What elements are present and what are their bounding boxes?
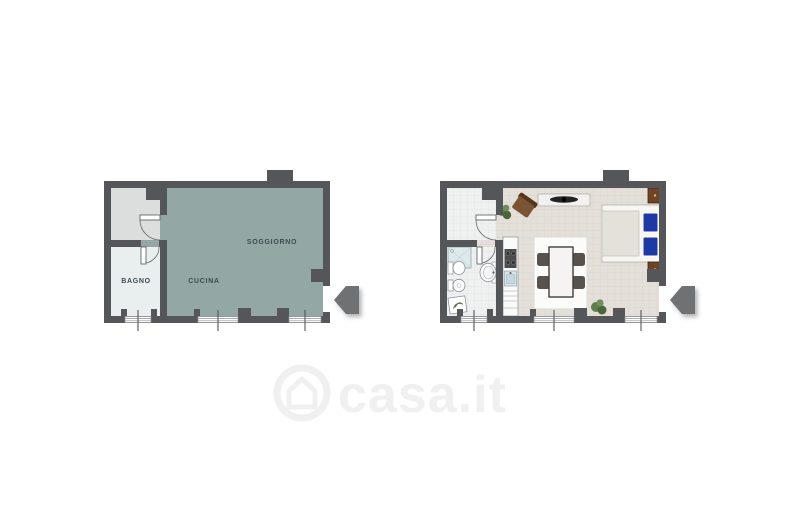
door-leaf bbox=[476, 215, 496, 220]
canvas-background: BAGNO CUCINA SOGGIORNO bbox=[0, 0, 800, 513]
tv-console bbox=[538, 194, 590, 206]
toilet bbox=[448, 261, 465, 274]
chair bbox=[537, 276, 550, 289]
door-leaf bbox=[140, 215, 160, 220]
house-circle-logo-icon bbox=[277, 368, 327, 418]
dining-set bbox=[534, 237, 587, 309]
kitchen-sink bbox=[505, 271, 517, 286]
entrance-opening bbox=[323, 286, 330, 312]
pillow bbox=[643, 237, 658, 256]
cooktop bbox=[505, 249, 517, 268]
entry-wall-notch bbox=[311, 269, 323, 282]
pillow bbox=[643, 213, 658, 232]
chimney-bump bbox=[267, 170, 293, 181]
entry-wall-notch bbox=[647, 269, 659, 282]
floor-plan-schematic: BAGNO CUCINA SOGGIORNO bbox=[96, 160, 376, 335]
label-bagno: BAGNO bbox=[121, 278, 151, 285]
chair bbox=[572, 276, 585, 289]
door-leaf bbox=[141, 247, 146, 264]
entrance-opening bbox=[659, 286, 666, 312]
dining-table bbox=[549, 247, 573, 297]
bidet bbox=[448, 279, 465, 291]
chair bbox=[537, 253, 550, 266]
watermark-brand-text: casa.it bbox=[338, 366, 507, 424]
kitchen-counter bbox=[503, 237, 518, 316]
entry-door-arrow bbox=[334, 286, 359, 314]
chair bbox=[572, 253, 585, 266]
label-cucina: CUCINA bbox=[188, 278, 219, 285]
chimney-bump bbox=[603, 170, 629, 181]
double-bed bbox=[602, 205, 660, 262]
door-leaf bbox=[477, 247, 482, 264]
entry-door-arrow bbox=[670, 286, 695, 314]
casa-it-watermark: casa.it bbox=[266, 352, 536, 438]
floor-plan-furnished bbox=[432, 160, 712, 335]
label-soggiorno: SOGGIORNO bbox=[247, 239, 297, 246]
